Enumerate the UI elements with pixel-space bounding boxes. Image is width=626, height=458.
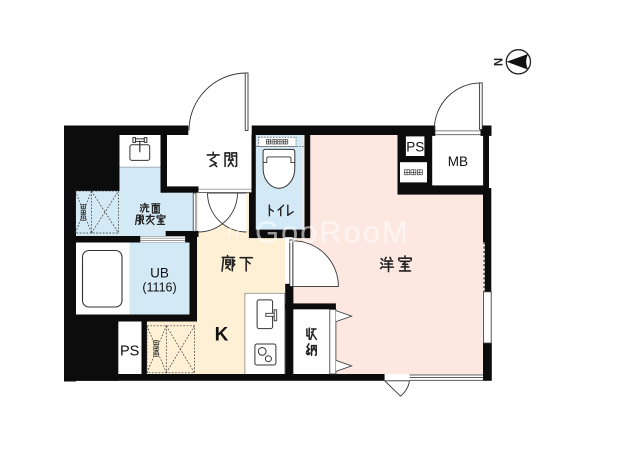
svg-text:GooRooM: GooRooM (255, 215, 410, 250)
svg-text:UB: UB (150, 266, 169, 281)
svg-text:PS: PS (406, 140, 424, 155)
svg-text:(1116): (1116) (142, 280, 176, 294)
svg-text:K: K (215, 325, 229, 346)
svg-text:PS: PS (120, 344, 139, 360)
svg-text:MB: MB (448, 154, 468, 169)
svg-text:N: N (494, 58, 506, 66)
